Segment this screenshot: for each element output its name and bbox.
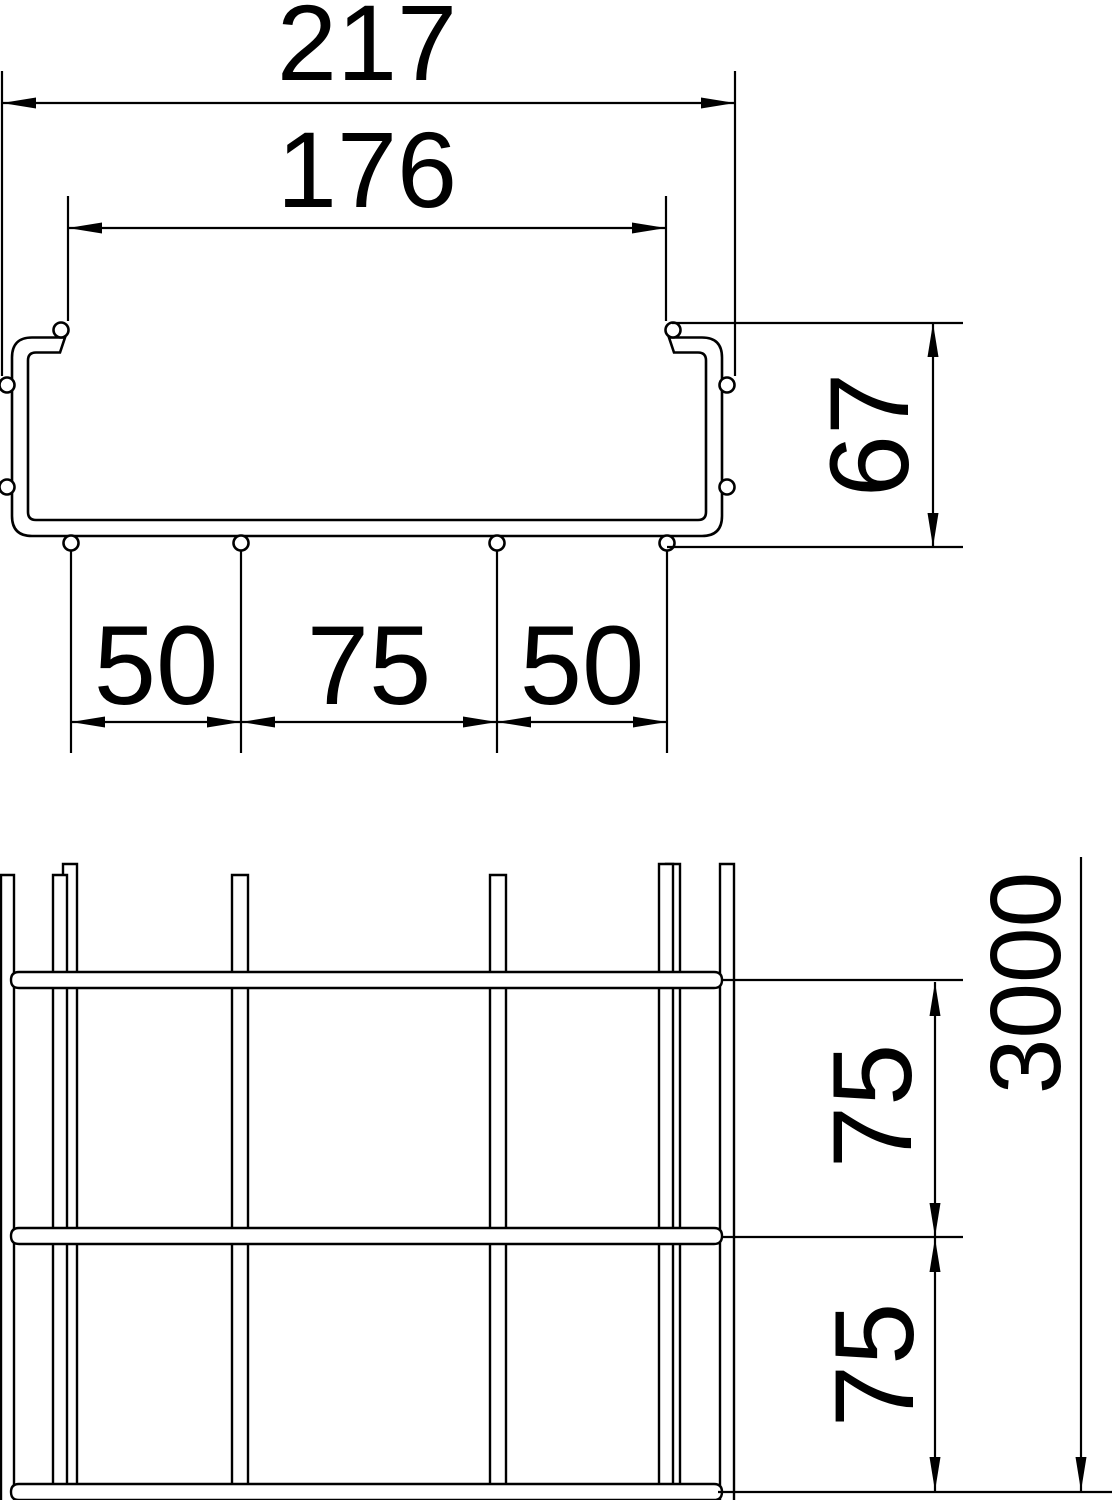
arrowhead-left [241,717,275,728]
dim-rung-pitch-1: 75 [810,982,941,1237]
rung-wire [11,1228,722,1244]
longitudinal-wire [53,875,67,1500]
arrowhead-down [928,513,939,547]
arrowhead-up [930,1238,941,1272]
tray-profile [12,338,722,537]
dim-label-bottom-left: 50 [94,603,219,728]
longitudinal-wire [720,864,734,1500]
rung-wire [11,972,722,988]
arrowhead-left [68,223,102,234]
dim-length: 3000 [970,857,1087,1491]
arrowhead-left [2,98,36,109]
dim-label-bottom-center: 75 [307,603,432,728]
drawing-canvas: 217 176 67 [0,0,1112,1500]
dim-label-height: 67 [807,373,932,498]
arrowhead-down [930,1203,941,1237]
longitudinal-wire [490,875,506,1500]
wire-cross-section-bottom-2 [234,536,249,551]
rung-wire [11,1484,722,1500]
dim-label-length: 3000 [970,872,1082,1094]
arrowhead-up [928,323,939,357]
technical-drawing: 217 176 67 [0,0,1112,1500]
length-view: 75 75 3000 [1,857,1112,1500]
dim-bottom-spacing: 50 75 50 [71,551,667,753]
wire-cross-section-side-right-upper [720,378,735,393]
cross-section-view: 217 176 67 [0,0,963,753]
arrowhead-right [701,98,735,109]
wire-cross-section-bottom-3 [490,536,505,551]
wire-cross-section-top-left [54,323,69,338]
wire-cross-section-side-left-upper [0,378,15,393]
arrowhead-right [463,717,497,728]
arrowhead-down [930,1457,941,1491]
longitudinal-wire [659,864,673,1500]
longitudinal-wire [1,875,14,1500]
wire-cross-section-side-left-lower [0,480,15,495]
wire-cross-section-bottom-1 [64,536,79,551]
dim-label-inner-width: 176 [277,109,457,230]
arrowhead-up [930,982,941,1016]
dim-label-pitch-a: 75 [810,1044,935,1169]
dim-inner-width: 176 [68,109,666,321]
dim-label-bottom-right: 50 [520,603,645,728]
dim-rung-pitch-2: 75 [812,1238,941,1491]
wire-cross-section-top-right [666,323,681,338]
dim-label-outer-width: 217 [277,0,457,103]
longitudinal-wire [232,875,248,1500]
dim-label-pitch-b: 75 [812,1303,937,1428]
arrowhead-right [632,223,666,234]
wire-cross-section-side-right-lower [720,480,735,495]
wire-cross-section-bottom-4 [660,536,675,551]
arrowhead-down [1076,1457,1087,1491]
